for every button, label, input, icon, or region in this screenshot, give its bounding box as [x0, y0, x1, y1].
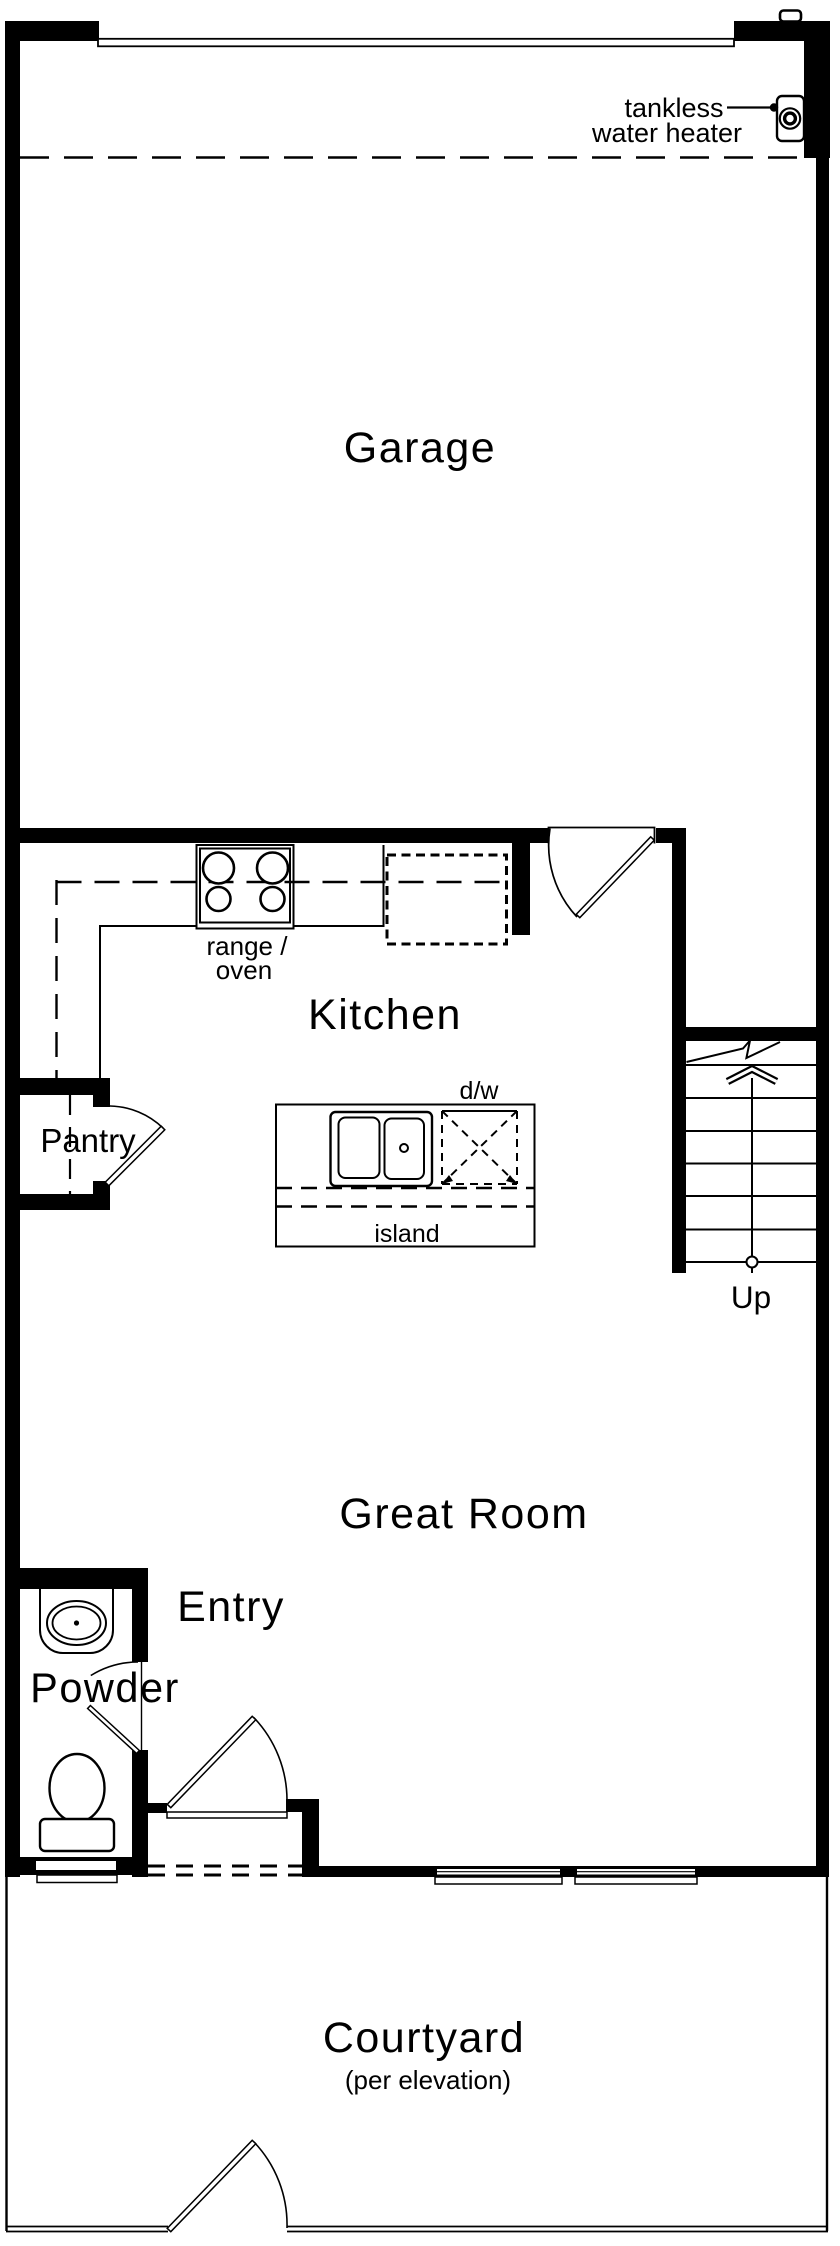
svg-text:d/w: d/w — [460, 1077, 500, 1105]
svg-text:Courtyard: Courtyard — [323, 2014, 525, 2062]
svg-text:oven: oven — [216, 955, 272, 985]
svg-text:Great Room: Great Room — [339, 1490, 588, 1538]
svg-text:island: island — [374, 1220, 439, 1248]
svg-text:Pantry: Pantry — [40, 1122, 136, 1159]
svg-text:Kitchen: Kitchen — [308, 991, 462, 1039]
svg-text:Entry: Entry — [177, 1583, 285, 1631]
svg-text:Garage: Garage — [344, 424, 496, 472]
svg-text:(per elevation): (per elevation) — [345, 2065, 511, 2095]
svg-text:Powder: Powder — [30, 1664, 180, 1711]
svg-text:water heater: water heater — [591, 118, 742, 148]
svg-text:Up: Up — [731, 1279, 771, 1315]
